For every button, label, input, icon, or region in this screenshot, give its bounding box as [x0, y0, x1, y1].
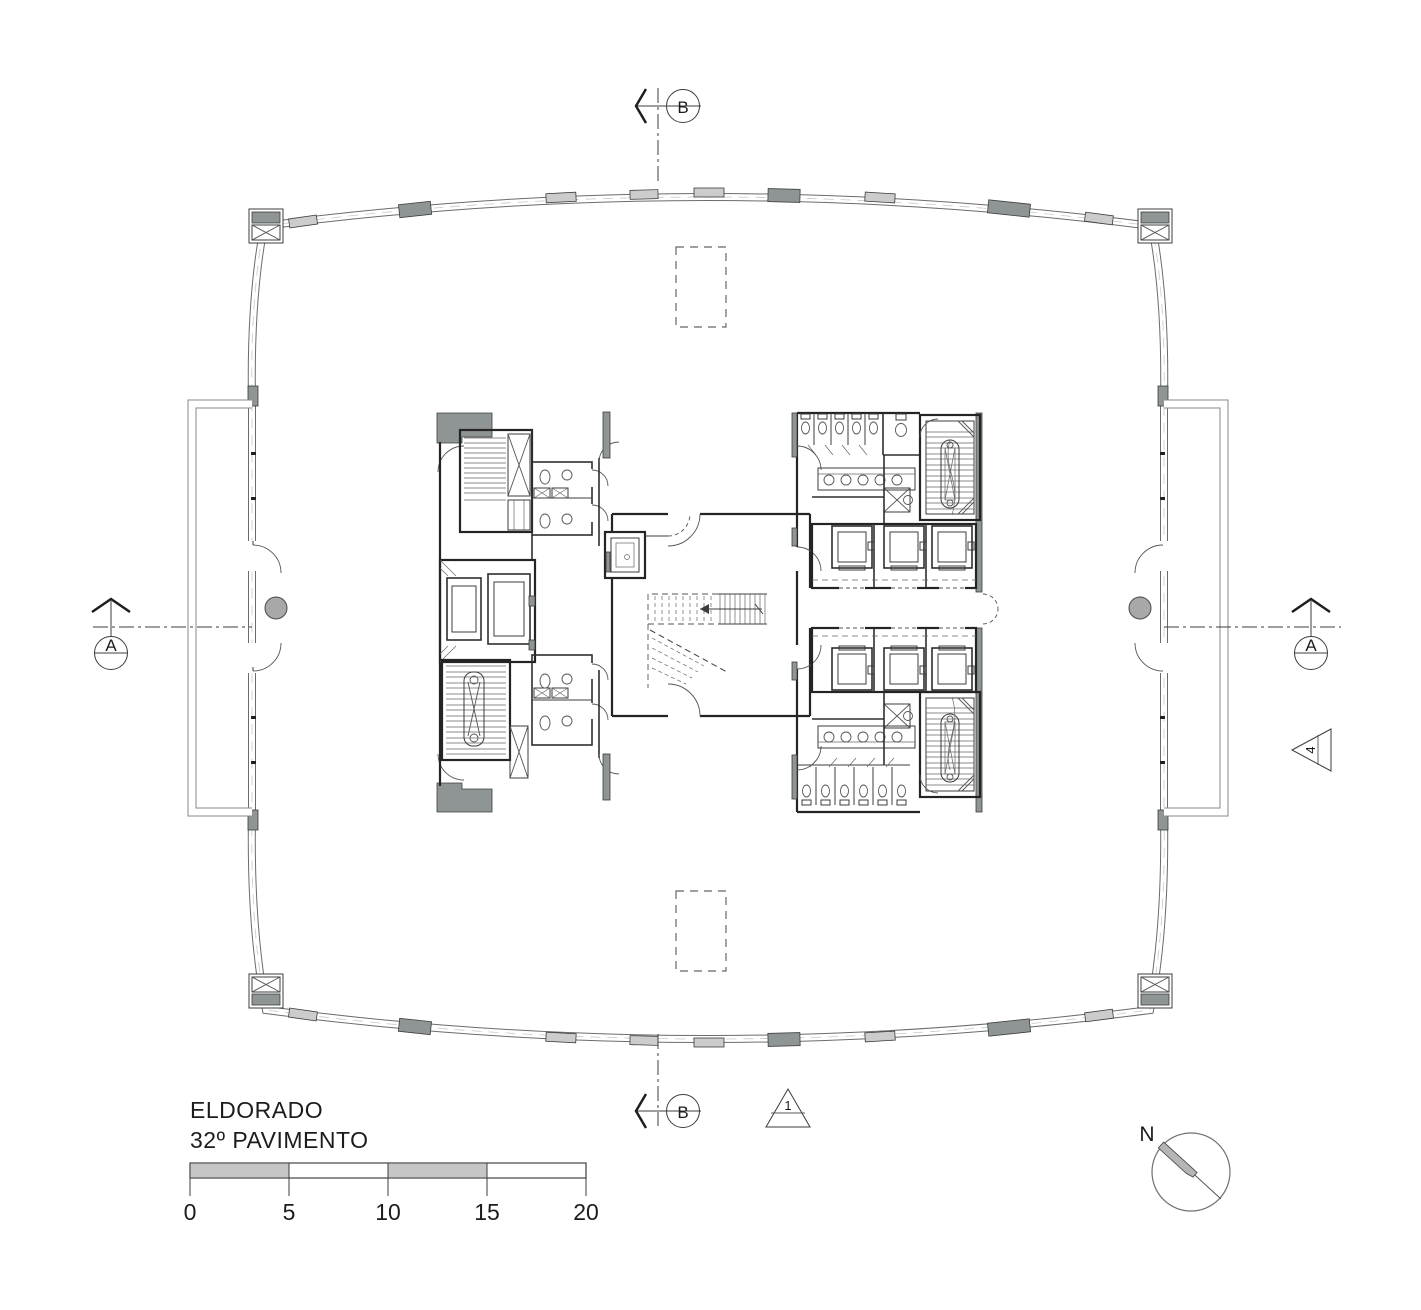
detail-marker-1: 1: [766, 1089, 810, 1127]
detail-label-4: 4: [1303, 746, 1318, 753]
bathroom-top: [797, 413, 920, 524]
column-right: [1129, 597, 1151, 619]
scale-label-0: 0: [184, 1199, 197, 1225]
section-marker-b-top: B: [636, 88, 701, 184]
drawing-title-line2: 32º PAVIMENTO: [190, 1127, 369, 1153]
elevator-bank-bottom: [812, 625, 976, 692]
section-marker-a-right: A: [1164, 599, 1341, 670]
scale-label-20: 20: [573, 1199, 599, 1225]
floor-plan-drawing: B B A A 1 4 ELDORADO 32º PAVIMENTO: [0, 0, 1421, 1310]
section-label-b-bottom: B: [677, 1103, 688, 1122]
stair-top-right: [920, 415, 980, 520]
left-core: [437, 412, 619, 812]
facade-panels: [248, 188, 1168, 1047]
section-marker-a-left: A: [92, 599, 252, 670]
building-facade: [251, 197, 1165, 1039]
right-core: [792, 413, 998, 812]
scale-label-10: 10: [375, 1199, 401, 1225]
title-block: ELDORADO 32º PAVIMENTO: [190, 1097, 369, 1153]
balcony-left: [192, 404, 252, 812]
central-stair: [648, 594, 767, 688]
north-label: N: [1139, 1123, 1154, 1146]
void-opening-top: [676, 247, 726, 327]
column-left: [265, 597, 287, 619]
stair-bottom-right: [920, 692, 980, 797]
bathroom-bottom: [797, 692, 915, 805]
corner-column-bl: [249, 974, 283, 1008]
scale-bar: 0 5 10 15 20: [184, 1163, 599, 1225]
section-label-a-right: A: [1305, 636, 1317, 655]
scale-label-15: 15: [474, 1199, 500, 1225]
elevator-bank-top: [812, 524, 976, 591]
corner-column-tl: [249, 209, 283, 243]
void-opening-bottom: [676, 891, 726, 971]
corner-column-tr: [1138, 209, 1172, 243]
detail-marker-4: 4: [1292, 729, 1331, 771]
section-label-b-top: B: [677, 98, 688, 117]
section-label-a-left: A: [105, 636, 117, 655]
corner-column-br: [1138, 974, 1172, 1008]
north-needle: [1158, 1142, 1197, 1177]
service-elevator: [605, 532, 645, 578]
scale-label-5: 5: [283, 1199, 296, 1225]
north-arrow: N: [1139, 1123, 1230, 1211]
section-marker-b-bottom: B: [636, 1034, 701, 1128]
floor-plan-page: B B A A 1 4 ELDORADO 32º PAVIMENTO: [0, 0, 1421, 1310]
balcony-right: [1164, 404, 1224, 812]
drawing-title-line1: ELDORADO: [190, 1097, 323, 1123]
central-core: [605, 514, 810, 716]
detail-label-1: 1: [784, 1098, 791, 1113]
